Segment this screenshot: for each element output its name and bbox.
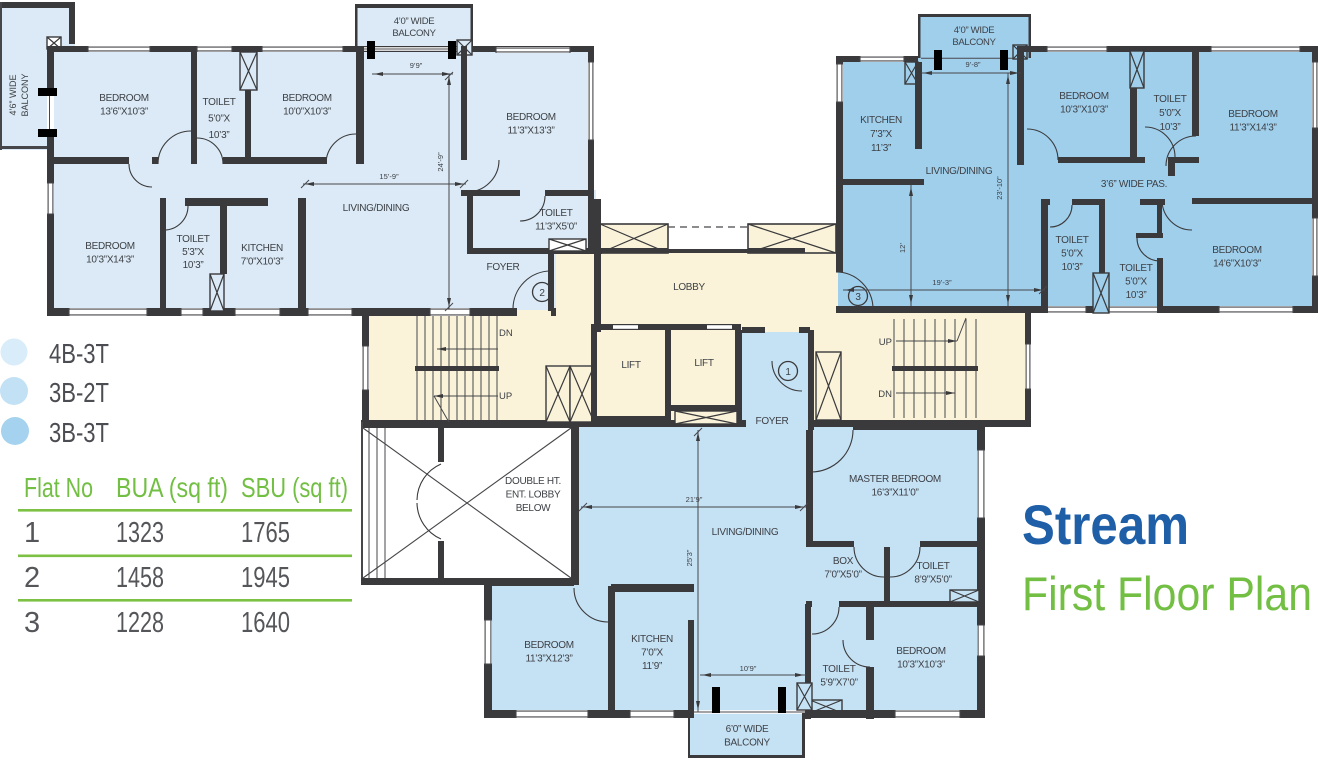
- svg-text:3B-2T: 3B-2T: [49, 377, 109, 408]
- svg-text:FOYER: FOYER: [487, 262, 520, 273]
- svg-text:Flat No: Flat No: [24, 472, 93, 503]
- svg-text:2: 2: [24, 562, 40, 594]
- svg-text:10’9”: 10’9”: [740, 664, 757, 673]
- svg-text:1: 1: [785, 367, 791, 378]
- svg-text:24’-9”: 24’-9”: [436, 152, 445, 172]
- svg-text:Stream: Stream: [1022, 493, 1189, 556]
- svg-text:LIVING/DINING: LIVING/DINING: [343, 203, 410, 214]
- svg-text:DN: DN: [499, 328, 513, 339]
- svg-text:LIFT: LIFT: [621, 360, 641, 371]
- svg-text:19’-3”: 19’-3”: [932, 278, 952, 287]
- svg-text:1323: 1323: [116, 517, 164, 549]
- svg-text:2: 2: [539, 288, 545, 299]
- svg-text:25’3”: 25’3”: [685, 549, 694, 566]
- svg-text:3: 3: [24, 607, 40, 639]
- svg-text:3: 3: [855, 292, 861, 303]
- svg-text:1458: 1458: [116, 562, 164, 594]
- svg-text:9’9”: 9’9”: [410, 61, 423, 70]
- svg-text:First Floor Plan: First Floor Plan: [1022, 567, 1312, 620]
- svg-text:4’0” WIDEBALCONY: 4’0” WIDEBALCONY: [392, 16, 436, 39]
- svg-text:21’9”: 21’9”: [686, 495, 703, 504]
- svg-text:LIVING/DINING: LIVING/DINING: [926, 166, 993, 177]
- svg-text:SBU (sq ft): SBU (sq ft): [241, 472, 348, 503]
- svg-text:1228: 1228: [116, 607, 164, 639]
- svg-text:1765: 1765: [241, 517, 290, 549]
- svg-text:UP: UP: [499, 391, 512, 402]
- svg-text:LIVING/DINING: LIVING/DINING: [712, 527, 779, 538]
- svg-text:FOYER: FOYER: [756, 416, 789, 427]
- svg-text:BUA (sq ft): BUA (sq ft): [116, 472, 228, 503]
- svg-text:4’0” WIDEBALCONY: 4’0” WIDEBALCONY: [952, 25, 996, 48]
- svg-text:4B-3T: 4B-3T: [49, 338, 109, 369]
- svg-text:3B-3T: 3B-3T: [49, 417, 109, 448]
- svg-text:15’-9”: 15’-9”: [379, 172, 399, 181]
- svg-text:LIFT: LIFT: [694, 358, 714, 369]
- svg-text:12’: 12’: [898, 243, 907, 253]
- svg-text:1945: 1945: [241, 562, 290, 594]
- svg-text:3’6” WIDE PAS.: 3’6” WIDE PAS.: [1101, 179, 1167, 190]
- svg-text:23’-10”: 23’-10”: [995, 176, 1004, 200]
- svg-text:9’-8”: 9’-8”: [965, 60, 981, 69]
- svg-text:UP: UP: [879, 337, 892, 348]
- svg-text:1640: 1640: [241, 607, 290, 639]
- svg-text:1: 1: [24, 517, 40, 549]
- svg-text:4’6” WIDE: 4’6” WIDE: [8, 74, 18, 115]
- svg-text:LOBBY: LOBBY: [673, 282, 705, 293]
- svg-text:DN: DN: [878, 389, 892, 400]
- svg-text:BALCONY: BALCONY: [20, 73, 30, 116]
